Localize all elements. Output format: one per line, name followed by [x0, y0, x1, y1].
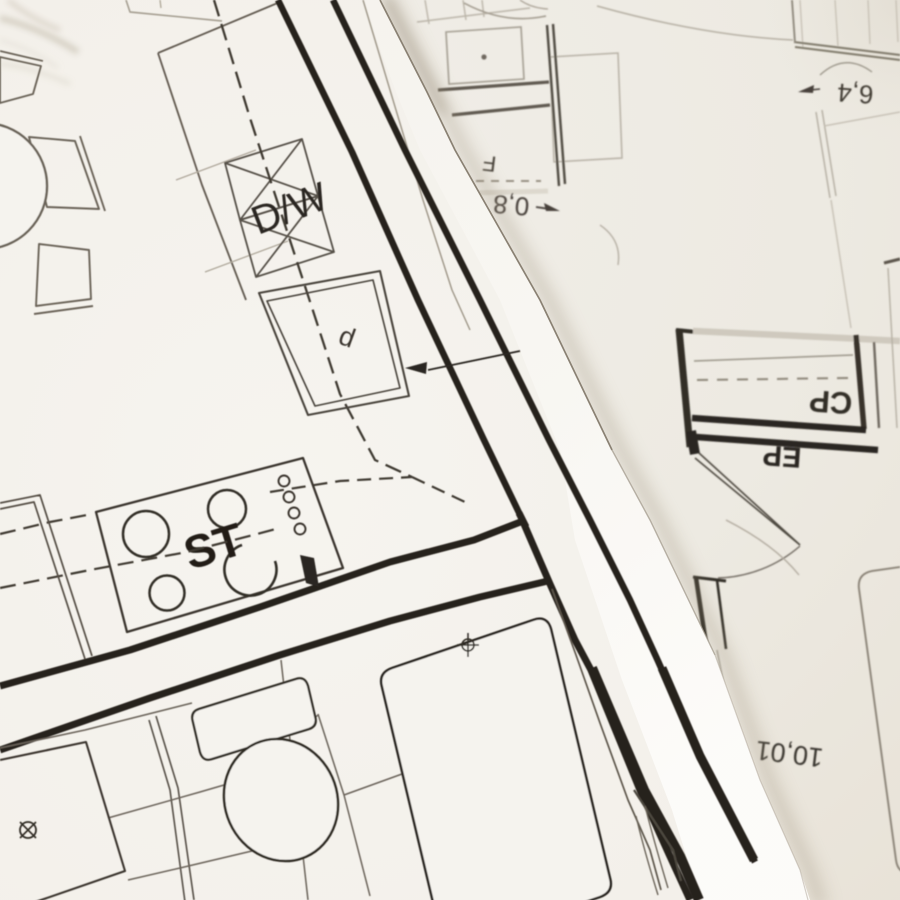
svg-text:6,4: 6,4: [836, 77, 874, 109]
svg-text:CP: CP: [808, 383, 853, 421]
svg-text:EP: EP: [762, 438, 803, 473]
